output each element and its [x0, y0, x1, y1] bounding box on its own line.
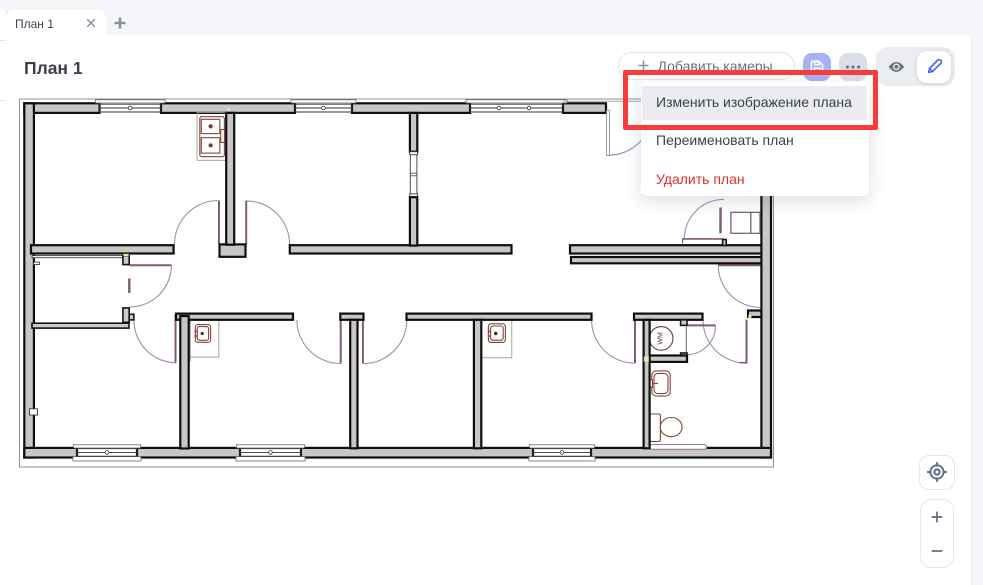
svg-text:WM: WM [658, 332, 665, 345]
